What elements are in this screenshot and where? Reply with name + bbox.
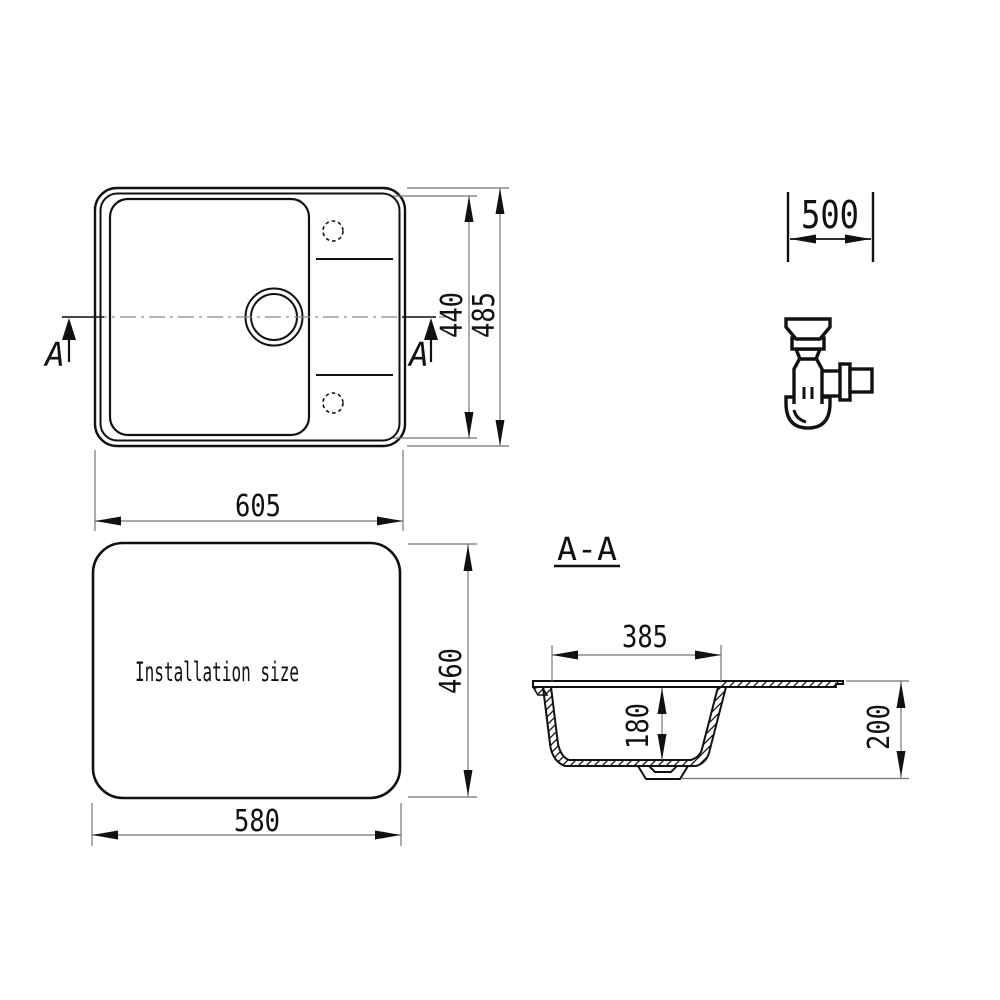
dim-text-605: 605: [235, 489, 281, 524]
siphon-outlet-end: [850, 369, 872, 392]
section-label-left: A: [43, 335, 65, 374]
technical-drawing-svg: A A 605 440 485 500: [0, 0, 1000, 1000]
arrowhead: [465, 412, 474, 438]
arrowhead: [496, 420, 505, 446]
dim-text-440: 440: [435, 292, 470, 338]
section-title: A-A: [557, 530, 617, 568]
arrowhead: [658, 734, 667, 760]
dim-text-385: 385: [622, 620, 668, 655]
arrowhead: [377, 517, 403, 526]
installation-label: Installation size: [135, 657, 299, 688]
arrowhead: [695, 651, 721, 660]
arrowhead: [465, 196, 474, 222]
dimension-180: 180: [621, 688, 667, 760]
arrowhead: [95, 517, 121, 526]
arrowhead: [375, 831, 401, 840]
dimension-605: 605: [95, 450, 403, 531]
section-cut-line: A A: [43, 317, 446, 374]
siphon-vertical-pipe: [794, 358, 822, 404]
arrowhead: [496, 188, 505, 214]
siphon-flange: [786, 319, 830, 339]
tap-hole-top: [323, 221, 343, 241]
section-label-right: A: [407, 335, 429, 374]
cabinet-dimension-500: 500: [788, 192, 873, 262]
tap-hole-bottom: [323, 393, 343, 413]
sink-dimension-drawing: A A 605 440 485 500: [0, 0, 1000, 1000]
dimension-580: 580: [92, 803, 401, 846]
arrowhead: [464, 770, 473, 796]
dim-text-500: 500: [801, 193, 859, 237]
dimension-460: 460: [408, 544, 477, 797]
dim-text-460: 460: [434, 648, 469, 694]
arrowhead: [897, 682, 906, 708]
dim-text-200: 200: [862, 704, 897, 750]
arrowhead: [658, 688, 667, 714]
dim-text-485: 485: [467, 292, 502, 338]
section-drainer-hatch: [720, 681, 843, 687]
dim-text-580: 580: [234, 804, 280, 839]
dimension-385: 385: [552, 620, 721, 681]
siphon-icon: [786, 319, 872, 428]
installation-view: Installation size: [93, 543, 400, 798]
section-drain-outlet: [638, 766, 688, 779]
dim-text-180: 180: [621, 703, 656, 749]
arrowhead: [464, 545, 473, 571]
arrowhead: [92, 831, 118, 840]
arrowhead: [552, 651, 578, 660]
arrowhead: [897, 751, 906, 777]
